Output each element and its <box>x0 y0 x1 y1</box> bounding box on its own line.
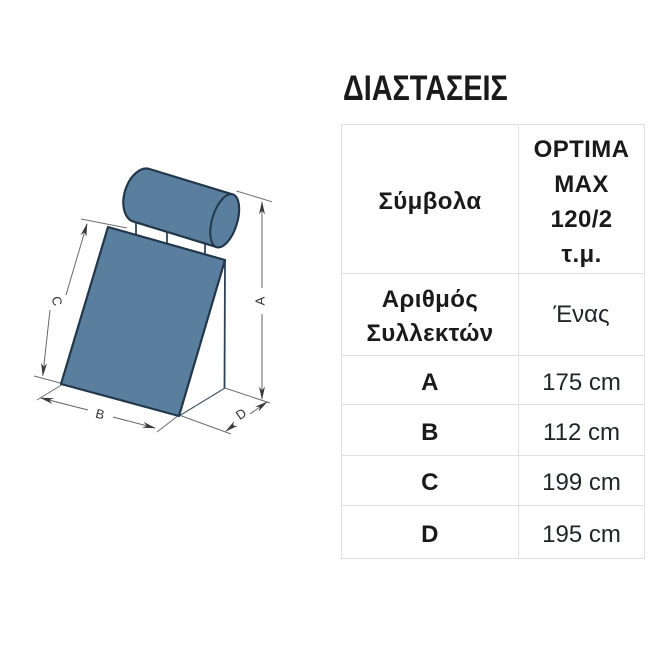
svg-text:B: B <box>94 406 106 423</box>
svg-text:D: D <box>233 405 249 423</box>
svg-text:C: C <box>48 294 65 307</box>
svg-text:A: A <box>253 296 268 305</box>
